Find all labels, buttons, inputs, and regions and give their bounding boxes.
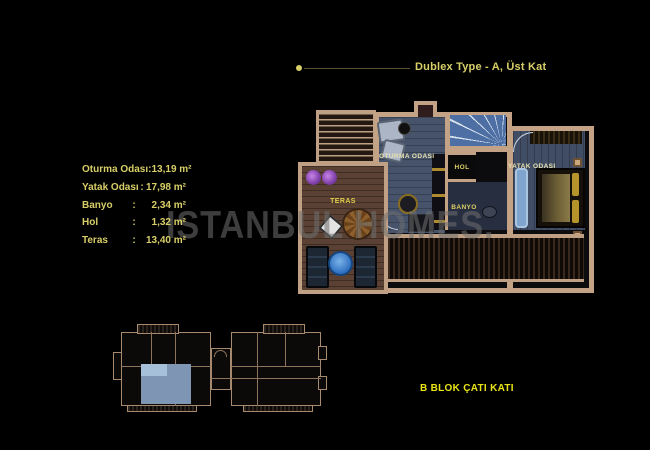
legend-row: Oturma Odası : 13,19 m² [82,161,186,179]
legend-room-name: Teras [82,232,130,250]
legend-row: Hol : 1,32 m² [82,214,186,232]
keyplan-right-wing [231,332,321,406]
legend-colon: : [130,197,138,215]
legend-room-area: 1,32 m² [138,214,186,232]
bedroom-label: YATAK ODASI [508,163,556,170]
legend-room-name: Banyo [82,197,130,215]
keyplan-roof-strip [243,405,313,412]
title-leader-dot [296,65,302,71]
highlighted-unit-room [141,364,167,376]
terrace-plant [306,170,321,185]
legend-row: Teras : 13,40 m² [82,232,186,250]
plant-pot [398,122,411,135]
bed-blanket [542,174,570,222]
bed-pillow [572,173,579,196]
bedroom-wardrobe [530,131,582,144]
building-key-plan [113,320,327,416]
sun-lounger [354,246,377,288]
living-room-label: OTURMA ODASI [379,153,434,160]
hall-area: HOL [448,152,476,182]
bed-pillow [572,200,579,223]
keyplan-roof-strip [137,324,179,334]
nightstand [573,158,582,167]
interior-staircase [450,115,506,146]
keyplan-balcony [318,346,327,360]
legend-room-name: Oturma Odası [82,161,148,179]
legend-room-area: 13,19 m² [151,161,191,179]
page-title: Dublex Type - A, Üst Kat [415,61,546,73]
legend-row: Yatak Odası : 17,98 m² [82,179,186,197]
sun-lounger [306,246,329,288]
floor-plan-page: Dublex Type - A, Üst Kat Oturma Odası : … [0,0,650,450]
room-area-legend: Oturma Odası : 13,19 m² Yatak Odası : 17… [82,161,186,250]
bedroom-rug [515,168,528,228]
block-floor-label: B BLOK ÇATI KATI [420,383,514,394]
legend-room-name: Hol [82,214,130,232]
keyplan-wall-line [285,332,286,366]
legend-room-area: 17,98 m² [145,179,186,197]
title-leader-line [304,68,410,69]
legend-room-name: Yatak Odası [82,179,139,197]
keyplan-stair-arc [214,350,227,357]
legend-row: Banyo : 2,34 m² [82,197,186,215]
exterior-staircase [316,110,376,164]
keyplan-wall-line [211,378,321,379]
terrace-round-table [328,251,353,276]
legend-room-area: 13,40 m² [138,232,186,250]
unit-floor-plan: HOL BANYO TERAS OTURMA ODASI YATAK ODA [296,96,596,298]
keyplan-wall-line [257,332,258,406]
legend-room-area: 2,34 m² [138,197,186,215]
legend-colon: : [130,232,138,250]
keyplan-roof-strip [127,405,197,412]
legend-colon: : [139,179,146,197]
keyplan-wall-line [151,332,152,366]
keyplan-roof-strip [263,324,305,334]
keyplan-wall-line [231,366,321,367]
legend-colon: : [130,214,138,232]
terrace-plant [322,170,337,185]
istanbul-homes-watermark: ISTANBUL HOMES. [166,204,494,248]
hall-label: HOL [455,164,470,171]
